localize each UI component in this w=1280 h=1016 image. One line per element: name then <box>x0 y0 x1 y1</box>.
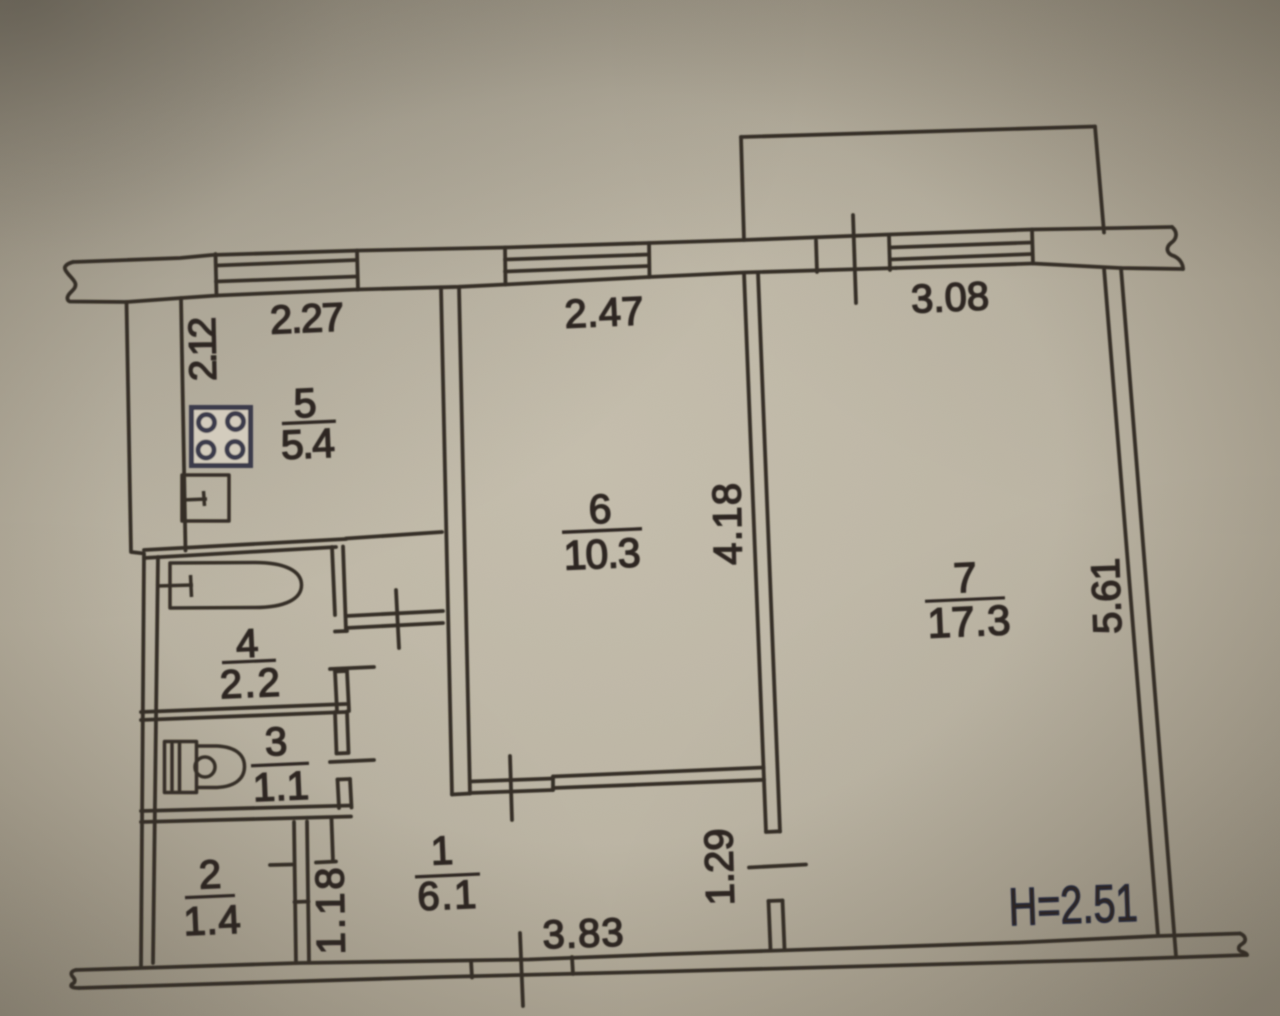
svg-text:H=2.51: H=2.51 <box>1008 874 1139 937</box>
svg-text:17.3: 17.3 <box>926 596 1011 647</box>
svg-text:2.2: 2.2 <box>219 661 281 708</box>
svg-text:1.18: 1.18 <box>308 867 354 955</box>
svg-text:6: 6 <box>588 486 613 533</box>
svg-text:5.4: 5.4 <box>280 420 336 468</box>
svg-text:2.27: 2.27 <box>269 295 345 342</box>
svg-text:1.29: 1.29 <box>697 828 743 906</box>
svg-text:1.4: 1.4 <box>183 898 242 944</box>
svg-text:3.08: 3.08 <box>910 274 990 321</box>
svg-text:3: 3 <box>264 720 288 765</box>
svg-text:2.47: 2.47 <box>564 289 645 336</box>
svg-text:2.12: 2.12 <box>182 317 225 382</box>
svg-text:10.3: 10.3 <box>563 529 642 578</box>
svg-text:7: 7 <box>952 554 977 602</box>
svg-text:6.1: 6.1 <box>416 873 477 920</box>
svg-text:4.18: 4.18 <box>705 483 750 566</box>
svg-text:2: 2 <box>198 853 222 898</box>
svg-text:3.83: 3.83 <box>542 911 624 958</box>
svg-text:1.1: 1.1 <box>252 764 310 810</box>
svg-text:1: 1 <box>430 829 454 874</box>
svg-text:5: 5 <box>293 380 318 427</box>
svg-text:5.61: 5.61 <box>1084 557 1131 634</box>
